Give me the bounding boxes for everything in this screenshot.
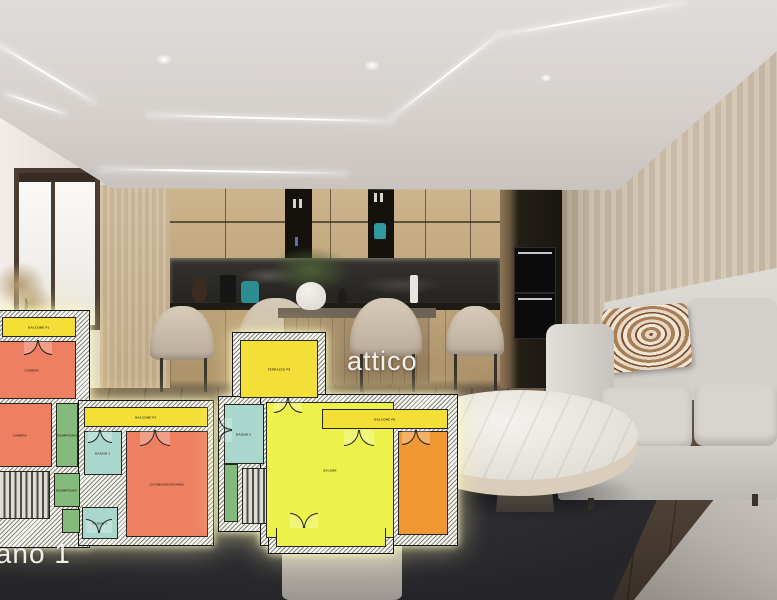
oven-handle (518, 252, 552, 254)
sofa-back-cushion (688, 298, 777, 392)
kettle (241, 281, 259, 303)
sofa-leg (752, 494, 758, 506)
led-strip (500, 1, 687, 36)
chair-leg (494, 354, 497, 390)
cabinet-seam (330, 185, 331, 258)
oven (514, 247, 556, 293)
cabinet-seam (225, 185, 226, 258)
bottle (299, 199, 302, 208)
led-strip (4, 92, 67, 115)
stool-leg (204, 358, 207, 392)
teal-jug (374, 223, 386, 239)
sofa-seat-cushion (694, 384, 777, 446)
ceiling-spotlight (540, 74, 552, 82)
apartment-render: BALCONE P1 CAMERA CAMERA DISIMPEGNO DISI… (0, 0, 777, 600)
oven-handle (518, 298, 552, 300)
led-strip (98, 168, 348, 174)
ceiling-spotlight (156, 54, 172, 65)
coffee-machine (220, 275, 236, 303)
dried-plant (10, 284, 54, 324)
floor-title-piano1: piano 1 (0, 538, 71, 570)
vase (192, 277, 207, 303)
coffee-table-top (402, 390, 638, 480)
pouf (282, 514, 402, 600)
cabinet-seam (470, 185, 471, 258)
bottle (410, 275, 418, 303)
bottle (380, 193, 383, 202)
led-strip (389, 31, 502, 120)
patterned-pillow (601, 302, 692, 373)
stool-leg (160, 358, 163, 392)
window-shade (19, 173, 95, 182)
bottle (293, 199, 296, 208)
led-strip (146, 114, 394, 122)
figurine (338, 288, 347, 308)
floor-title-attico: attico (347, 346, 418, 377)
ceiling-spotlight (364, 60, 380, 71)
cabinet-seam (425, 185, 426, 258)
bottle (374, 193, 377, 202)
table-lamp (296, 282, 326, 310)
kitchen-upper-cabinets (170, 185, 500, 258)
open-shelf-niche (368, 185, 394, 258)
bottle (295, 237, 298, 246)
chair-leg (454, 354, 457, 390)
cabinet-seam (170, 221, 500, 223)
